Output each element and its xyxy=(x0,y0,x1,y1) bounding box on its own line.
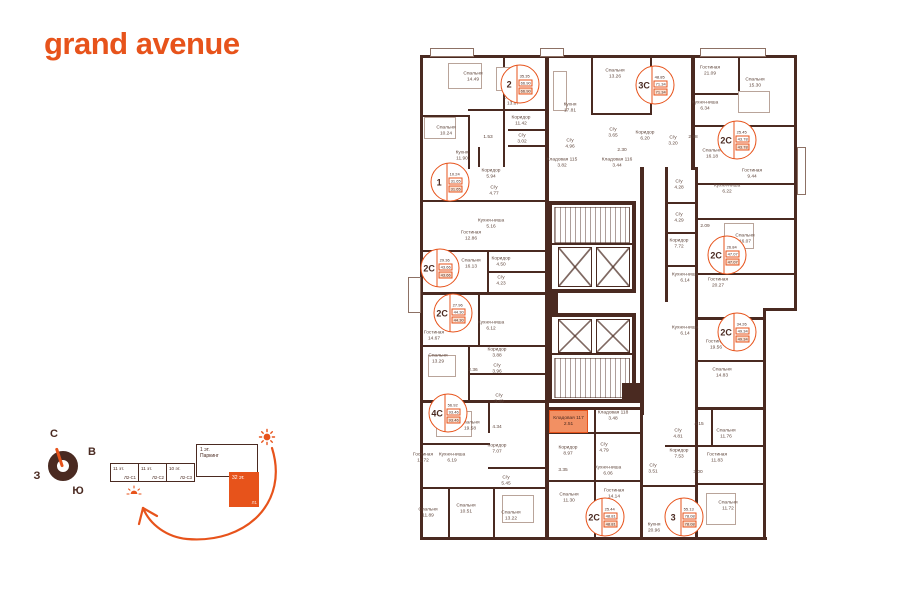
apartment-area-value: 49.34 xyxy=(736,336,750,343)
room-label: С/у4.29 xyxy=(674,212,683,224)
room-name: С/у xyxy=(674,212,683,218)
room-area: 4.15 xyxy=(694,422,703,428)
room-name: С/у xyxy=(565,138,574,144)
room-label: Коридор7.72 xyxy=(670,238,689,250)
room-name: Спальня xyxy=(428,353,447,359)
room-area: 3.02 xyxy=(517,139,526,145)
room-area: 7.72 xyxy=(670,244,689,250)
room-name: Коридор xyxy=(482,168,501,174)
wall xyxy=(478,147,480,167)
apartment-type: 1 xyxy=(432,177,447,187)
room-name: Спальня xyxy=(712,367,731,373)
room-name: Кухня-ниша xyxy=(478,320,504,326)
room-label: Кладовая 1153.82 xyxy=(547,157,577,169)
room-area: 2.30 xyxy=(617,148,626,154)
room-area: 3.82 xyxy=(547,163,577,169)
room-area: 12.86 xyxy=(461,236,481,242)
room-area: 3.44 xyxy=(602,163,632,169)
room-name: Гостиная xyxy=(700,65,720,71)
apartment-area-value: 93.46 xyxy=(447,417,461,424)
room-area: 4.81 xyxy=(673,434,682,440)
balcony xyxy=(408,277,421,313)
room-area: 11.76 xyxy=(716,434,735,440)
room-name: Коридор xyxy=(488,347,507,353)
room-label: Коридор6.20 xyxy=(636,130,655,142)
room-label: С/у3.96 xyxy=(492,363,501,375)
room-name: Коридор xyxy=(670,448,689,454)
apartment-area-value: 71.34 xyxy=(654,89,668,96)
room-name: С/у xyxy=(599,442,608,448)
room-name: Спальня xyxy=(436,125,455,131)
room-area: 6.20 xyxy=(636,136,655,142)
logo: grand avenue xyxy=(44,26,240,62)
room-name: Кухня xyxy=(564,102,577,108)
wall xyxy=(665,445,695,447)
room-name: С/у xyxy=(648,463,657,469)
room-label: Кухня20.96 xyxy=(648,522,661,534)
elevator-shaft xyxy=(558,319,592,353)
room-area: 3.88 xyxy=(488,353,507,359)
wall xyxy=(594,407,596,434)
room-name: С/у xyxy=(489,185,498,191)
room-area: 6.12 xyxy=(478,326,504,332)
apartment-type: 2С xyxy=(435,308,450,318)
apartment-area-value: 43.66 xyxy=(439,272,453,279)
room-name: Спальня xyxy=(501,510,520,516)
apartment-area-value: 48.81 xyxy=(604,512,618,519)
room-label: Кладовая 1183.48 xyxy=(598,410,628,422)
room-label: 3.00 xyxy=(693,470,702,476)
room-area: 11.89 xyxy=(418,513,437,519)
room-area: 11.30 xyxy=(559,498,578,504)
furniture xyxy=(738,91,770,113)
wall xyxy=(640,412,643,537)
room-label: С/у4.28 xyxy=(674,179,683,191)
room-label: Кухня11.90 xyxy=(456,150,469,162)
wall xyxy=(420,345,545,347)
room-area: 13.26 xyxy=(605,74,624,80)
room-area: 6.14 xyxy=(672,278,698,284)
room-name: С/у xyxy=(608,127,617,133)
room-label: 2.09 xyxy=(700,224,709,230)
room-area: 3.35 xyxy=(558,468,567,474)
room-area: 4.34 xyxy=(492,425,501,431)
room-name: Кухня-ниша xyxy=(439,452,465,458)
room-label: Коридор8.97 xyxy=(559,445,578,457)
wall xyxy=(763,308,797,311)
apartment-area-value: 26.84 xyxy=(726,244,740,249)
room-name: Коридор xyxy=(670,238,689,244)
room-name: Кладовая 116 xyxy=(602,157,632,163)
balcony xyxy=(797,147,806,195)
apartment-area-value: 43.78 xyxy=(736,135,750,142)
room-name: Кухня-ниша xyxy=(672,325,698,331)
apartment-badge[interactable]: 3С48.8571.3471.34 xyxy=(636,66,675,105)
room-name: Кухня-ниша xyxy=(478,218,504,224)
room-name: Гостиная xyxy=(461,230,481,236)
room-area: 6.06 xyxy=(595,471,621,477)
wall xyxy=(420,487,545,489)
balcony xyxy=(540,48,564,57)
elevator-shaft xyxy=(596,247,630,287)
room-label: Коридор11.42 xyxy=(512,115,531,127)
room-area: 4.29 xyxy=(674,218,683,224)
wall xyxy=(695,360,765,362)
apartment-area-value: 44.30 xyxy=(452,308,466,315)
wall xyxy=(695,218,795,220)
wall xyxy=(468,373,545,375)
room-label: Кухня-ниша6.14 xyxy=(672,325,698,337)
room-name: Спальня xyxy=(463,71,482,77)
room-area: 1.53 xyxy=(483,135,492,141)
apartment-area-value: 78.08 xyxy=(683,521,697,528)
apartment-area-value: 55.13 xyxy=(683,506,697,511)
room-label: Спальня13.29 xyxy=(428,353,447,365)
room-area: 20.27 xyxy=(708,283,728,289)
apartment-area-value: 78.08 xyxy=(683,512,697,519)
room-name: Спальня xyxy=(418,507,437,513)
room-name: Кухня-ниша xyxy=(692,100,718,106)
apartment-badge[interactable]: 2С29.3643.6643.66 xyxy=(421,249,460,288)
room-label: Гостиная11.72 xyxy=(413,452,433,464)
stairwell xyxy=(554,207,630,243)
tower-floors: 32 эт. xyxy=(232,475,245,481)
wall xyxy=(488,467,545,469)
room-name: С/у xyxy=(674,179,683,185)
wall xyxy=(665,232,695,234)
room-name: Кухня-ниша xyxy=(595,465,621,471)
wall xyxy=(493,487,495,537)
room-label: Коридор4.50 xyxy=(492,256,511,268)
room-area: 7.07 xyxy=(488,449,507,455)
room-label: 4.34 xyxy=(492,425,501,431)
room-label: С/у4.79 xyxy=(599,442,608,454)
wall xyxy=(503,111,505,167)
room-label: Гостиная21.09 xyxy=(700,65,720,77)
room-name: Гостиная xyxy=(604,488,624,494)
room-area: 16.13 xyxy=(461,264,480,270)
elevator-shaft xyxy=(596,319,630,353)
room-area: 3.65 xyxy=(608,133,617,139)
floor-plan: Спальня14.49Спальня13.87Коридор11.42Спал… xyxy=(408,55,800,545)
room-label: С/у5.45 xyxy=(501,475,510,487)
room-area: 8.97 xyxy=(559,451,578,457)
room-label: Гостиная14.67 xyxy=(424,330,444,342)
compass-east: В xyxy=(88,446,96,458)
apartment-area-value: 43.66 xyxy=(439,263,453,270)
room-name: Спальня xyxy=(559,492,578,498)
wall xyxy=(711,410,713,445)
apartment-type: 3 xyxy=(666,512,681,522)
room-label: Спальня16.13 xyxy=(461,258,480,270)
room-label: С/у3.65 xyxy=(608,127,617,139)
wall xyxy=(548,289,636,293)
wall xyxy=(640,167,644,415)
room-label: С/у3.51 xyxy=(648,463,657,475)
wall xyxy=(763,308,766,540)
scheme-tower-l1-selected[interactable]: 32 эт. Л1 xyxy=(229,472,259,507)
room-name: С/у xyxy=(673,428,682,434)
room-area: 6.34 xyxy=(692,106,718,112)
room-area: 4.28 xyxy=(674,185,683,191)
room-area: 4.96 xyxy=(565,144,574,150)
elevator-shaft xyxy=(558,247,592,287)
apartment-area-value: 35.35 xyxy=(519,73,533,78)
room-area: 15.30 xyxy=(745,83,764,89)
wall xyxy=(665,265,695,267)
room-label: Спальня15.30 xyxy=(745,77,764,89)
room-label: 2.98 xyxy=(688,135,697,141)
room-area: 6.22 xyxy=(714,189,740,195)
stairwell xyxy=(554,358,630,398)
apartment-badge[interactable]: 2С25.4543.7843.78 xyxy=(718,121,757,160)
wall xyxy=(695,167,698,410)
room-name: Кухня-ниша xyxy=(672,272,698,278)
wall xyxy=(548,201,552,293)
room-label: Гостиная9.44 xyxy=(742,168,762,180)
room-area: 3.20 xyxy=(668,141,677,147)
room-label: Спальня11.76 xyxy=(716,428,735,440)
wall xyxy=(487,271,545,273)
room-label: Спальня11.89 xyxy=(418,507,437,519)
apartment-area-value: 71.34 xyxy=(654,80,668,87)
room-name: Кладовая 118 xyxy=(598,410,628,416)
room-area: 2.36 xyxy=(468,368,477,374)
apartment-badge[interactable]: 355.1378.0878.08 xyxy=(665,498,704,537)
wall xyxy=(508,145,546,147)
room-name: С/у xyxy=(494,393,503,399)
apartment-type: 2С xyxy=(709,250,724,260)
apartment-area-value: 27.96 xyxy=(452,302,466,307)
room-area: 11.90 xyxy=(456,156,469,162)
room-name: Гостиная xyxy=(707,452,727,458)
room-area: 14.83 xyxy=(712,373,731,379)
wall xyxy=(665,202,695,204)
room-name: Гостиная xyxy=(413,452,433,458)
apartment-area-value: 43.78 xyxy=(736,144,750,151)
room-name: Спальня xyxy=(718,500,737,506)
room-name: Спальня xyxy=(702,148,721,154)
room-area: 6.19 xyxy=(439,458,465,464)
apartment-badge[interactable]: 2С34.2649.3449.34 xyxy=(718,313,757,352)
apartment-type: 2 xyxy=(502,79,517,89)
wall xyxy=(420,200,545,202)
room-label: Спальня13.26 xyxy=(605,68,624,80)
room-name: Гостиная xyxy=(742,168,762,174)
room-area: 4.23 xyxy=(496,281,505,287)
wall xyxy=(548,313,552,403)
room-label: С/у3.20 xyxy=(668,135,677,147)
room-name: Коридор xyxy=(636,130,655,136)
tower-code: Л1 xyxy=(252,500,257,505)
wall xyxy=(420,292,545,295)
apartment-badge[interactable]: 2С26.8447.0747.07 xyxy=(708,236,747,275)
page: grand avenue С В З Ю 11 эт. Л2-С1 11 эт.… xyxy=(0,0,900,591)
room-area: 5.45 xyxy=(501,481,510,487)
wall xyxy=(545,55,549,167)
wall xyxy=(488,403,490,433)
room-name: Коридор xyxy=(512,115,531,121)
room-area: 5.16 xyxy=(478,224,504,230)
room-label: С/у3.49 xyxy=(494,393,503,405)
room-name: Кухня xyxy=(648,522,661,528)
room-name: С/у xyxy=(517,133,526,139)
room-label: Кухня-ниша6.14 xyxy=(672,272,698,284)
apartment-type: 2С xyxy=(719,327,734,337)
apartment-type: 2С xyxy=(719,135,734,145)
room-area: 21.09 xyxy=(700,71,720,77)
room-area: 14.67 xyxy=(424,336,444,342)
room-label: С/у4.23 xyxy=(496,275,505,287)
room-label: С/у4.81 xyxy=(673,428,682,440)
apartment-area-value: 44.30 xyxy=(452,317,466,324)
room-area: 16.18 xyxy=(702,154,721,160)
room-area: 13.29 xyxy=(428,359,447,365)
room-label: Коридор3.88 xyxy=(488,347,507,359)
room-label: Кухня-ниша5.16 xyxy=(478,218,504,230)
room-area: 4.77 xyxy=(489,191,498,197)
compass-north: С xyxy=(50,428,58,440)
room-label: Коридор7.53 xyxy=(670,448,689,460)
room-area: 11.83 xyxy=(707,458,727,464)
room-label: Спальня11.30 xyxy=(559,492,578,504)
room-label: Коридор7.07 xyxy=(488,443,507,455)
room-area: 14.49 xyxy=(463,77,482,83)
apartment-type: 2С xyxy=(587,512,602,522)
wall xyxy=(695,273,795,275)
apartment-area-value: 31.65 xyxy=(449,186,463,193)
wall xyxy=(448,487,450,537)
room-area: 3.51 xyxy=(648,469,657,475)
room-area: 17.81 xyxy=(564,108,577,114)
room-name: Коридор xyxy=(492,256,511,262)
room-name: Кухня-ниша xyxy=(714,183,740,189)
room-label: Гостиная20.27 xyxy=(708,277,728,289)
apartment-badge[interactable]: 4С56.9293.4693.46 xyxy=(429,394,468,433)
room-name: Коридор xyxy=(559,445,578,451)
apartment-area-value: 25.44 xyxy=(604,506,618,511)
apartment-badge[interactable]: 235.3566.9066.90 xyxy=(501,65,540,104)
room-area: 11.72 xyxy=(718,506,737,512)
room-name: С/у xyxy=(496,275,505,281)
room-area: 3.48 xyxy=(598,416,628,422)
room-label: Гостиная11.83 xyxy=(707,452,727,464)
room-name: Гостиная xyxy=(424,330,444,336)
wall xyxy=(420,443,490,445)
apartment-area-value: 66.90 xyxy=(519,88,533,95)
balcony xyxy=(700,48,766,57)
room-area: 10.51 xyxy=(456,509,475,515)
room-name: С/у xyxy=(668,135,677,141)
room-label: Спальня14.83 xyxy=(712,367,731,379)
room-label: Кухня-ниша6.06 xyxy=(595,465,621,477)
wall xyxy=(695,483,765,485)
apartment-area-value: 25.45 xyxy=(736,129,750,134)
room-area: 9.44 xyxy=(742,174,762,180)
room-label: 2.36 xyxy=(468,368,477,374)
compass-south: Ю xyxy=(72,485,83,497)
apartment-area-value: 49.34 xyxy=(736,327,750,334)
wall xyxy=(548,313,636,317)
room-label: Кухня17.81 xyxy=(564,102,577,114)
apartment-badge[interactable]: 110.2431.6531.65 xyxy=(431,163,470,202)
room-label: Спальня11.72 xyxy=(718,500,737,512)
room-label: С/у3.02 xyxy=(517,133,526,145)
apartment-area-value: 34.26 xyxy=(736,321,750,326)
room-area: 2.98 xyxy=(688,135,697,141)
room-name: С/у xyxy=(492,363,501,369)
room-area: 20.96 xyxy=(648,528,661,534)
room-name: С/у xyxy=(501,475,510,481)
room-label: 1.53 xyxy=(483,135,492,141)
room-label: 3.35 xyxy=(558,468,567,474)
room-label: Спальня10.24 xyxy=(436,125,455,137)
wall xyxy=(548,293,558,313)
room-label: С/у4.77 xyxy=(489,185,498,197)
storage-area: 2.51 xyxy=(564,422,573,428)
room-area: 11.72 xyxy=(413,458,433,464)
wall xyxy=(508,129,546,131)
room-area: 2.09 xyxy=(700,224,709,230)
room-area: 3.49 xyxy=(494,399,503,405)
apartment-area-value: 47.07 xyxy=(726,259,740,266)
room-name: Спальня xyxy=(461,258,480,264)
room-label: Спальня14.49 xyxy=(463,71,482,83)
room-name: Спальня xyxy=(716,428,735,434)
room-area: 6.14 xyxy=(672,331,698,337)
wall xyxy=(591,55,593,115)
wall xyxy=(548,243,636,245)
room-label: Спальня16.18 xyxy=(702,148,721,160)
room-label: Кухня-ниша6.19 xyxy=(439,452,465,464)
apartment-area-value: 31.65 xyxy=(449,177,463,184)
room-label: 4.15 xyxy=(694,422,703,428)
room-label: Гостиная12.86 xyxy=(461,230,481,242)
room-name: Спальня xyxy=(605,68,624,74)
room-name: Кухня xyxy=(456,150,469,156)
room-name: Спальня xyxy=(745,77,764,83)
wall xyxy=(591,113,651,115)
room-area: 7.53 xyxy=(670,454,689,460)
apartment-area-value: 48.85 xyxy=(654,74,668,79)
wall xyxy=(548,353,636,355)
apartment-area-value: 10.24 xyxy=(449,171,463,176)
room-label: Коридор5.94 xyxy=(482,168,501,180)
room-name: Спальня xyxy=(456,503,475,509)
apartment-area-value: 29.36 xyxy=(439,257,453,262)
room-area: 19.58 xyxy=(460,426,479,432)
storage-unit-117-selected[interactable]: Кладовая 1172.51 xyxy=(549,410,588,433)
room-area: 5.94 xyxy=(482,174,501,180)
wall xyxy=(695,445,765,447)
balcony xyxy=(430,48,474,57)
compass-west: З xyxy=(34,470,41,482)
room-label: Кухня-ниша6.12 xyxy=(478,320,504,332)
room-area: 11.42 xyxy=(512,121,531,127)
room-area: 10.24 xyxy=(436,131,455,137)
room-name: Коридор xyxy=(488,443,507,449)
apartment-badge[interactable]: 2С25.4448.8148.81 xyxy=(586,498,625,537)
room-area: 4.79 xyxy=(599,448,608,454)
wall xyxy=(548,201,636,205)
rotation-arrow-icon xyxy=(115,430,300,560)
apartment-area-value: 56.92 xyxy=(447,402,461,407)
apartment-badge[interactable]: 2С27.9644.3044.30 xyxy=(434,294,473,333)
wall xyxy=(632,201,636,293)
room-label: Спальня10.51 xyxy=(456,503,475,515)
wall xyxy=(468,109,548,111)
room-label: Спальня13.22 xyxy=(501,510,520,522)
